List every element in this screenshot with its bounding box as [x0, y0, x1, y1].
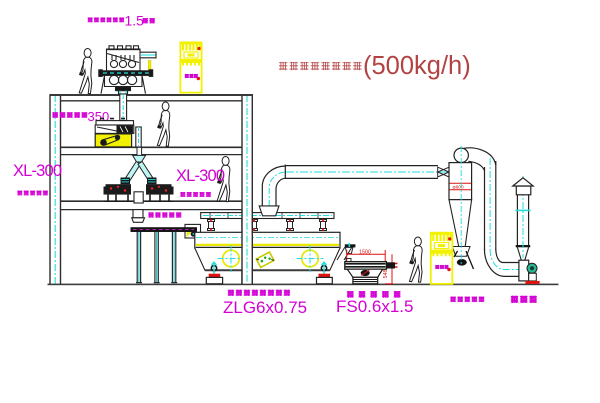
- svg-text:FS0.6x1.5: FS0.6x1.5: [336, 297, 414, 316]
- svg-text:350: 350: [88, 109, 110, 124]
- svg-text:1.5: 1.5: [125, 13, 145, 29]
- svg-text:XL-300: XL-300: [176, 167, 225, 185]
- svg-text:548: 548: [383, 270, 389, 279]
- svg-text:1500: 1500: [359, 249, 371, 255]
- svg-text:φ600: φ600: [453, 185, 464, 191]
- svg-text:XL-300: XL-300: [13, 162, 62, 180]
- svg-text:ZLG6x0.75: ZLG6x0.75: [223, 298, 307, 317]
- svg-text:(500kg/h): (500kg/h): [363, 52, 471, 80]
